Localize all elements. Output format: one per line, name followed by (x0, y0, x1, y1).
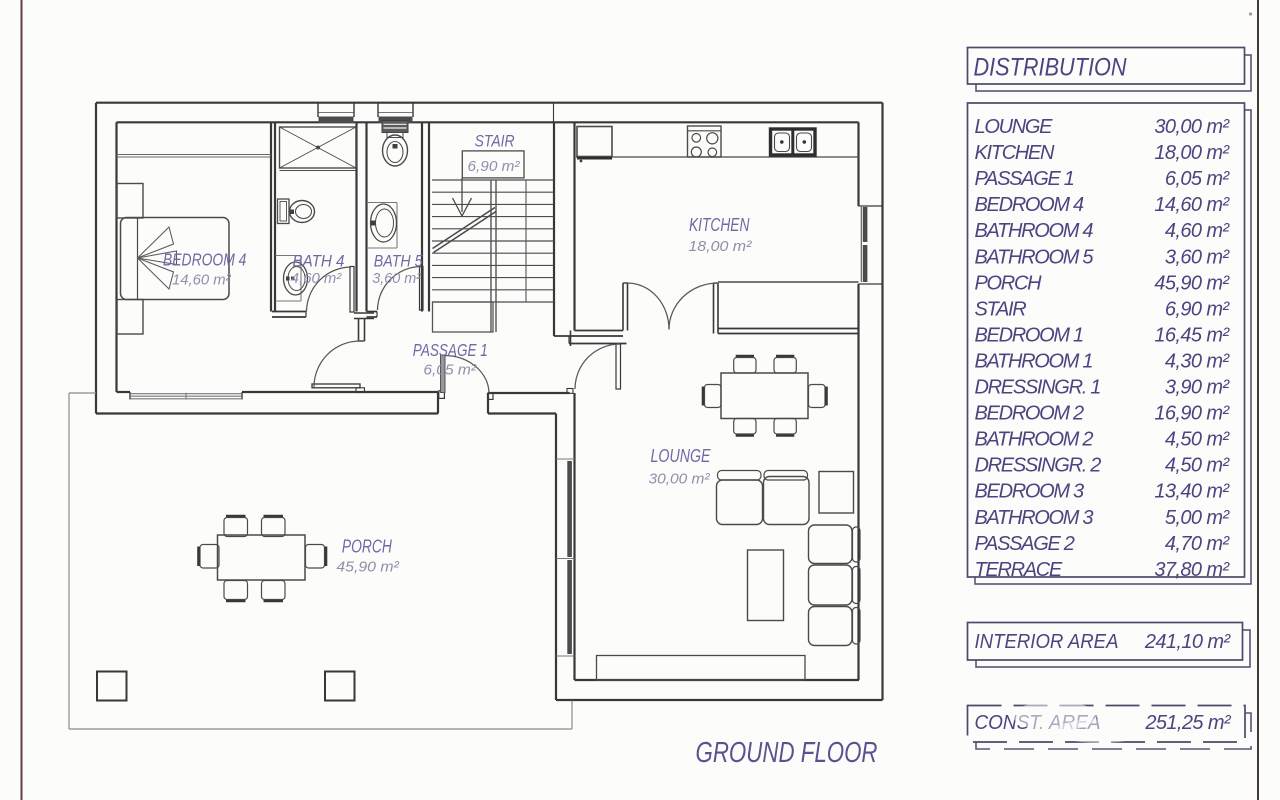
svg-text:4,60 m²: 4,60 m² (1165, 220, 1231, 242)
svg-text:BATHROOM 4: BATHROOM 4 (975, 220, 1094, 242)
svg-text:LOUNGE: LOUNGE (651, 446, 712, 466)
svg-text:3,60 m²: 3,60 m² (1165, 246, 1231, 268)
svg-text:BATHROOM 2: BATHROOM 2 (975, 429, 1094, 451)
svg-text:3,90 m²: 3,90 m² (1165, 377, 1231, 399)
svg-text:37,80 m²: 37,80 m² (1154, 559, 1230, 581)
svg-text:16,45 m²: 16,45 m² (1154, 324, 1230, 346)
svg-text:18,00 m²: 18,00 m² (688, 238, 752, 255)
svg-text:30,00 m²: 30,00 m² (649, 471, 711, 488)
svg-text:45,90 m²: 45,90 m² (1154, 272, 1230, 294)
svg-text:30,00 m²: 30,00 m² (1154, 116, 1230, 138)
svg-text:BATH 5: BATH 5 (374, 253, 424, 271)
svg-text:BATHROOM 5: BATHROOM 5 (975, 246, 1095, 268)
svg-text:PASSAGE 1: PASSAGE 1 (975, 168, 1074, 190)
svg-text:BEDROOM 1: BEDROOM 1 (975, 324, 1083, 346)
svg-text:BATHROOM 1: BATHROOM 1 (975, 350, 1093, 372)
svg-text:4,70 m²: 4,70 m² (1165, 533, 1231, 555)
svg-text:4,50 m²: 4,50 m² (1165, 455, 1231, 477)
svg-text:GROUND FLOOR: GROUND FLOOR (696, 737, 878, 769)
svg-text:DISTRIBUTION: DISTRIBUTION (974, 54, 1128, 82)
svg-text:16,90 m²: 16,90 m² (1154, 403, 1230, 425)
svg-text:PASSAGE 1: PASSAGE 1 (413, 340, 488, 360)
svg-text:6,05 m²: 6,05 m² (423, 362, 477, 379)
svg-text:BATH 4: BATH 4 (293, 253, 345, 271)
svg-text:BATHROOM 3: BATHROOM 3 (975, 507, 1094, 529)
svg-text:DRESSINGR. 1: DRESSINGR. 1 (975, 377, 1101, 399)
svg-text:PASSAGE 2: PASSAGE 2 (975, 533, 1075, 555)
svg-text:13,40 m²: 13,40 m² (1154, 481, 1230, 503)
svg-text:14,60 m²: 14,60 m² (172, 272, 232, 289)
svg-text:45,90 m²: 45,90 m² (336, 559, 400, 576)
svg-text:4,50 m²: 4,50 m² (1165, 429, 1231, 451)
svg-text:4,60 m²: 4,60 m² (291, 271, 343, 287)
svg-text:BEDROOM 4: BEDROOM 4 (163, 250, 247, 270)
svg-text:241,10 m²: 241,10 m² (1144, 631, 1232, 653)
svg-text:INTERIOR AREA: INTERIOR AREA (975, 631, 1119, 653)
svg-text:14,60 m²: 14,60 m² (1154, 194, 1230, 216)
svg-text:3,60 m²: 3,60 m² (372, 271, 422, 287)
svg-text:18,00 m²: 18,00 m² (1154, 142, 1230, 164)
svg-text:LOUNGE: LOUNGE (975, 116, 1054, 138)
svg-text:6,90 m²: 6,90 m² (1165, 298, 1231, 320)
svg-text:BEDROOM 4: BEDROOM 4 (975, 194, 1084, 216)
svg-text:5,00 m²: 5,00 m² (1165, 507, 1231, 529)
svg-text:KITCHEN: KITCHEN (689, 215, 750, 235)
svg-text:6,05 m²: 6,05 m² (1165, 168, 1231, 190)
svg-text:BEDROOM 2: BEDROOM 2 (975, 403, 1084, 425)
svg-text:PORCH: PORCH (975, 272, 1043, 294)
svg-text:6,90 m²: 6,90 m² (468, 159, 521, 175)
svg-text:STAIR: STAIR (975, 298, 1027, 320)
svg-text:PORCH: PORCH (342, 537, 393, 557)
svg-text:251,25 m²: 251,25 m² (1144, 712, 1232, 734)
svg-text:TERRACE: TERRACE (975, 559, 1063, 581)
svg-text:KITCHEN: KITCHEN (975, 142, 1056, 164)
svg-text:DRESSINGR. 2: DRESSINGR. 2 (975, 455, 1102, 477)
svg-text:STAIR: STAIR (475, 133, 515, 151)
svg-text:4,30 m²: 4,30 m² (1165, 350, 1231, 372)
svg-text:BEDROOM 3: BEDROOM 3 (975, 481, 1084, 503)
